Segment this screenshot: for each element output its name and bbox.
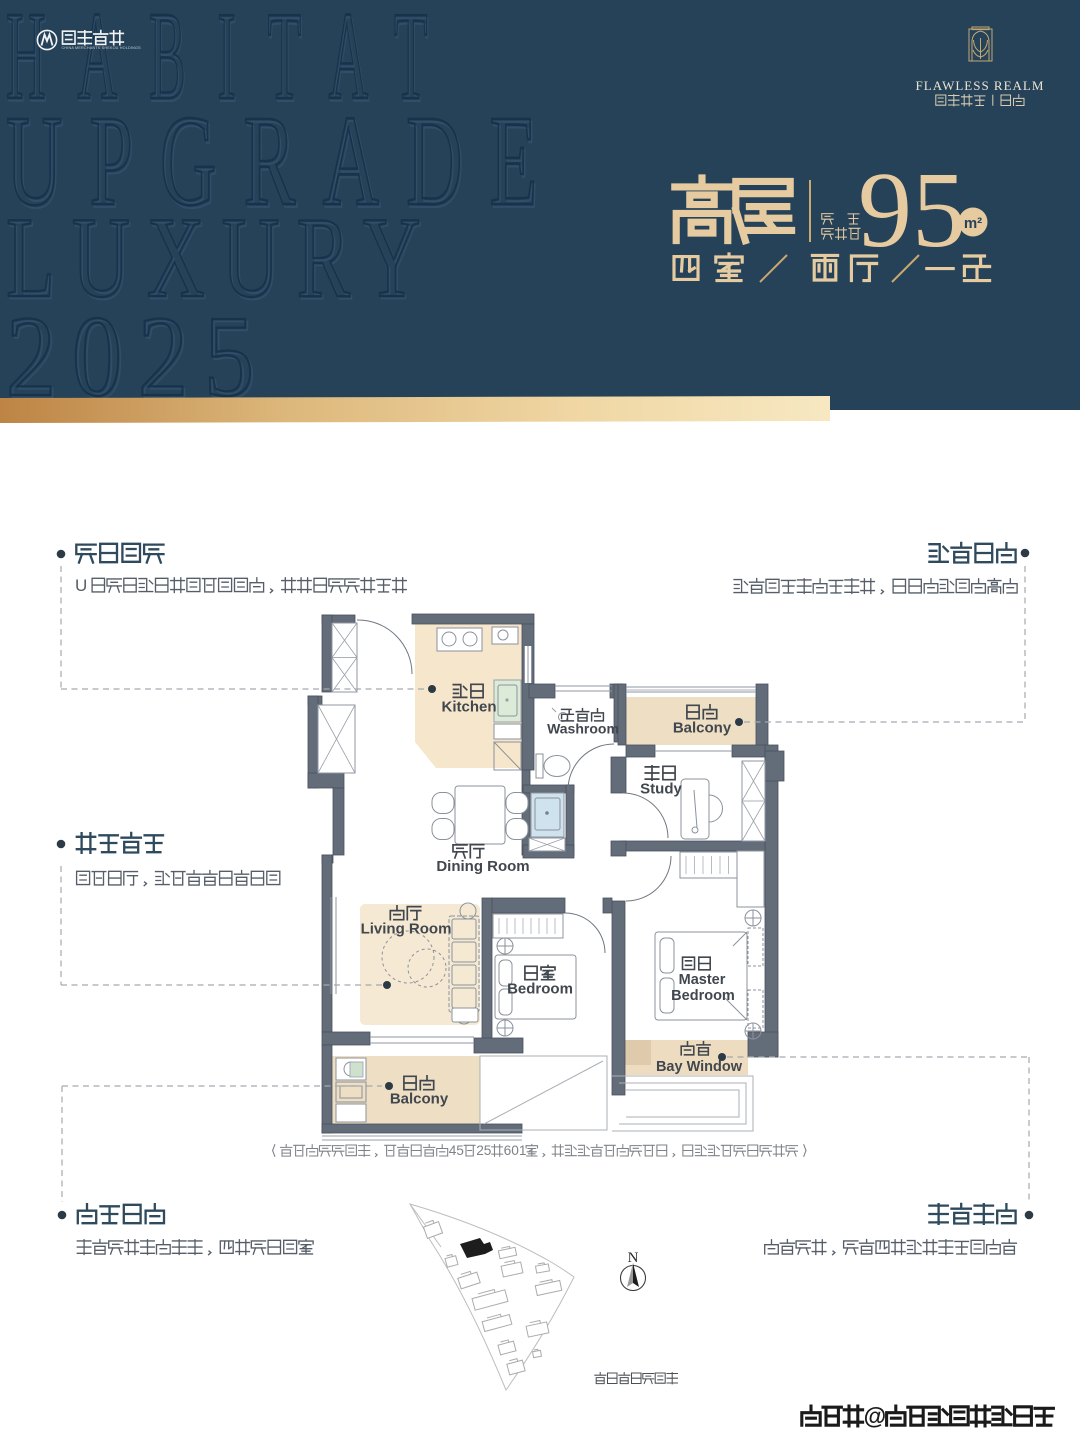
svg-text:Washroom: Washroom [547, 721, 619, 737]
svg-text:m²: m² [964, 215, 982, 232]
svg-text:Bay Window: Bay Window [656, 1059, 743, 1075]
svg-text:N: N [628, 1250, 639, 1266]
svg-text:Bedroom: Bedroom [671, 988, 735, 1004]
svg-text:Bedroom: Bedroom [507, 980, 573, 997]
svg-text:Kitchen: Kitchen [441, 698, 496, 715]
svg-text:FLAWLESS REALM: FLAWLESS REALM [916, 78, 1045, 93]
svg-text:Living Room: Living Room [361, 920, 452, 937]
svg-text:Master: Master [679, 972, 726, 988]
svg-text:@: @ [864, 1403, 887, 1429]
svg-text:95: 95 [858, 151, 966, 270]
svg-text:Study: Study [640, 780, 682, 797]
svg-text:Balcony: Balcony [673, 719, 732, 736]
svg-text:U: U [75, 576, 87, 595]
svg-text:25: 25 [476, 1143, 492, 1158]
svg-text:601: 601 [504, 1143, 527, 1158]
svg-text:45: 45 [449, 1143, 465, 1158]
svg-text:Balcony: Balcony [390, 1090, 449, 1107]
svg-text:CHINA MERCHANTS SHEKOU HOLDING: CHINA MERCHANTS SHEKOU HOLDINGS [62, 46, 142, 50]
svg-text:Dining Room: Dining Room [436, 858, 529, 875]
